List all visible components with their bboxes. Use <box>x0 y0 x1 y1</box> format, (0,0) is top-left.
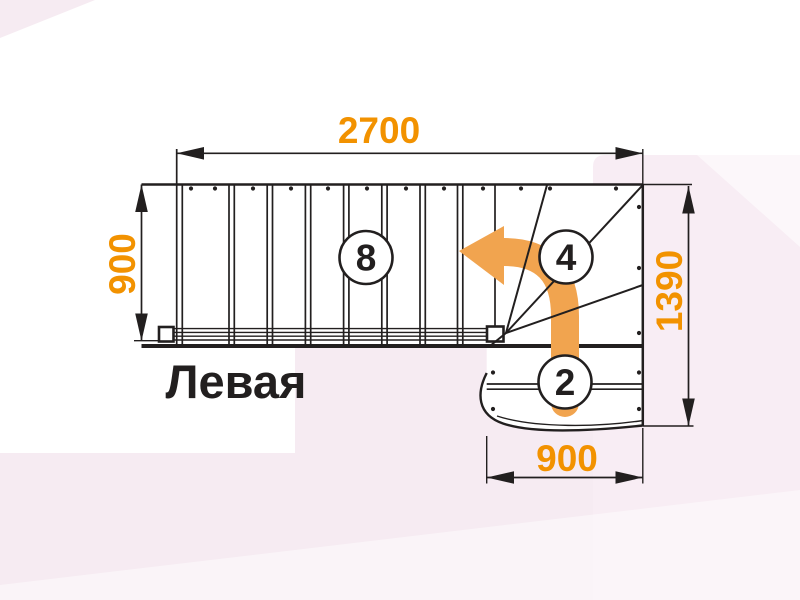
plan-canvas: 2700 900 1390 900 8 4 2 Левая <box>0 0 800 600</box>
dim-label-top: 2700 <box>338 110 420 151</box>
lower-flight-count: 2 <box>555 362 576 403</box>
main-flight-count: 8 <box>356 238 377 279</box>
dim-label-bottom: 900 <box>536 438 598 479</box>
newel-post-left <box>159 327 174 342</box>
staircase-plan-diagram: 2700 900 1390 900 8 4 2 Левая <box>0 0 800 600</box>
plan-title: Левая <box>166 355 307 408</box>
newel-post-right <box>487 327 504 342</box>
winder-count: 4 <box>556 237 577 278</box>
dim-label-left: 900 <box>102 233 143 295</box>
dim-label-right: 1390 <box>649 250 690 332</box>
